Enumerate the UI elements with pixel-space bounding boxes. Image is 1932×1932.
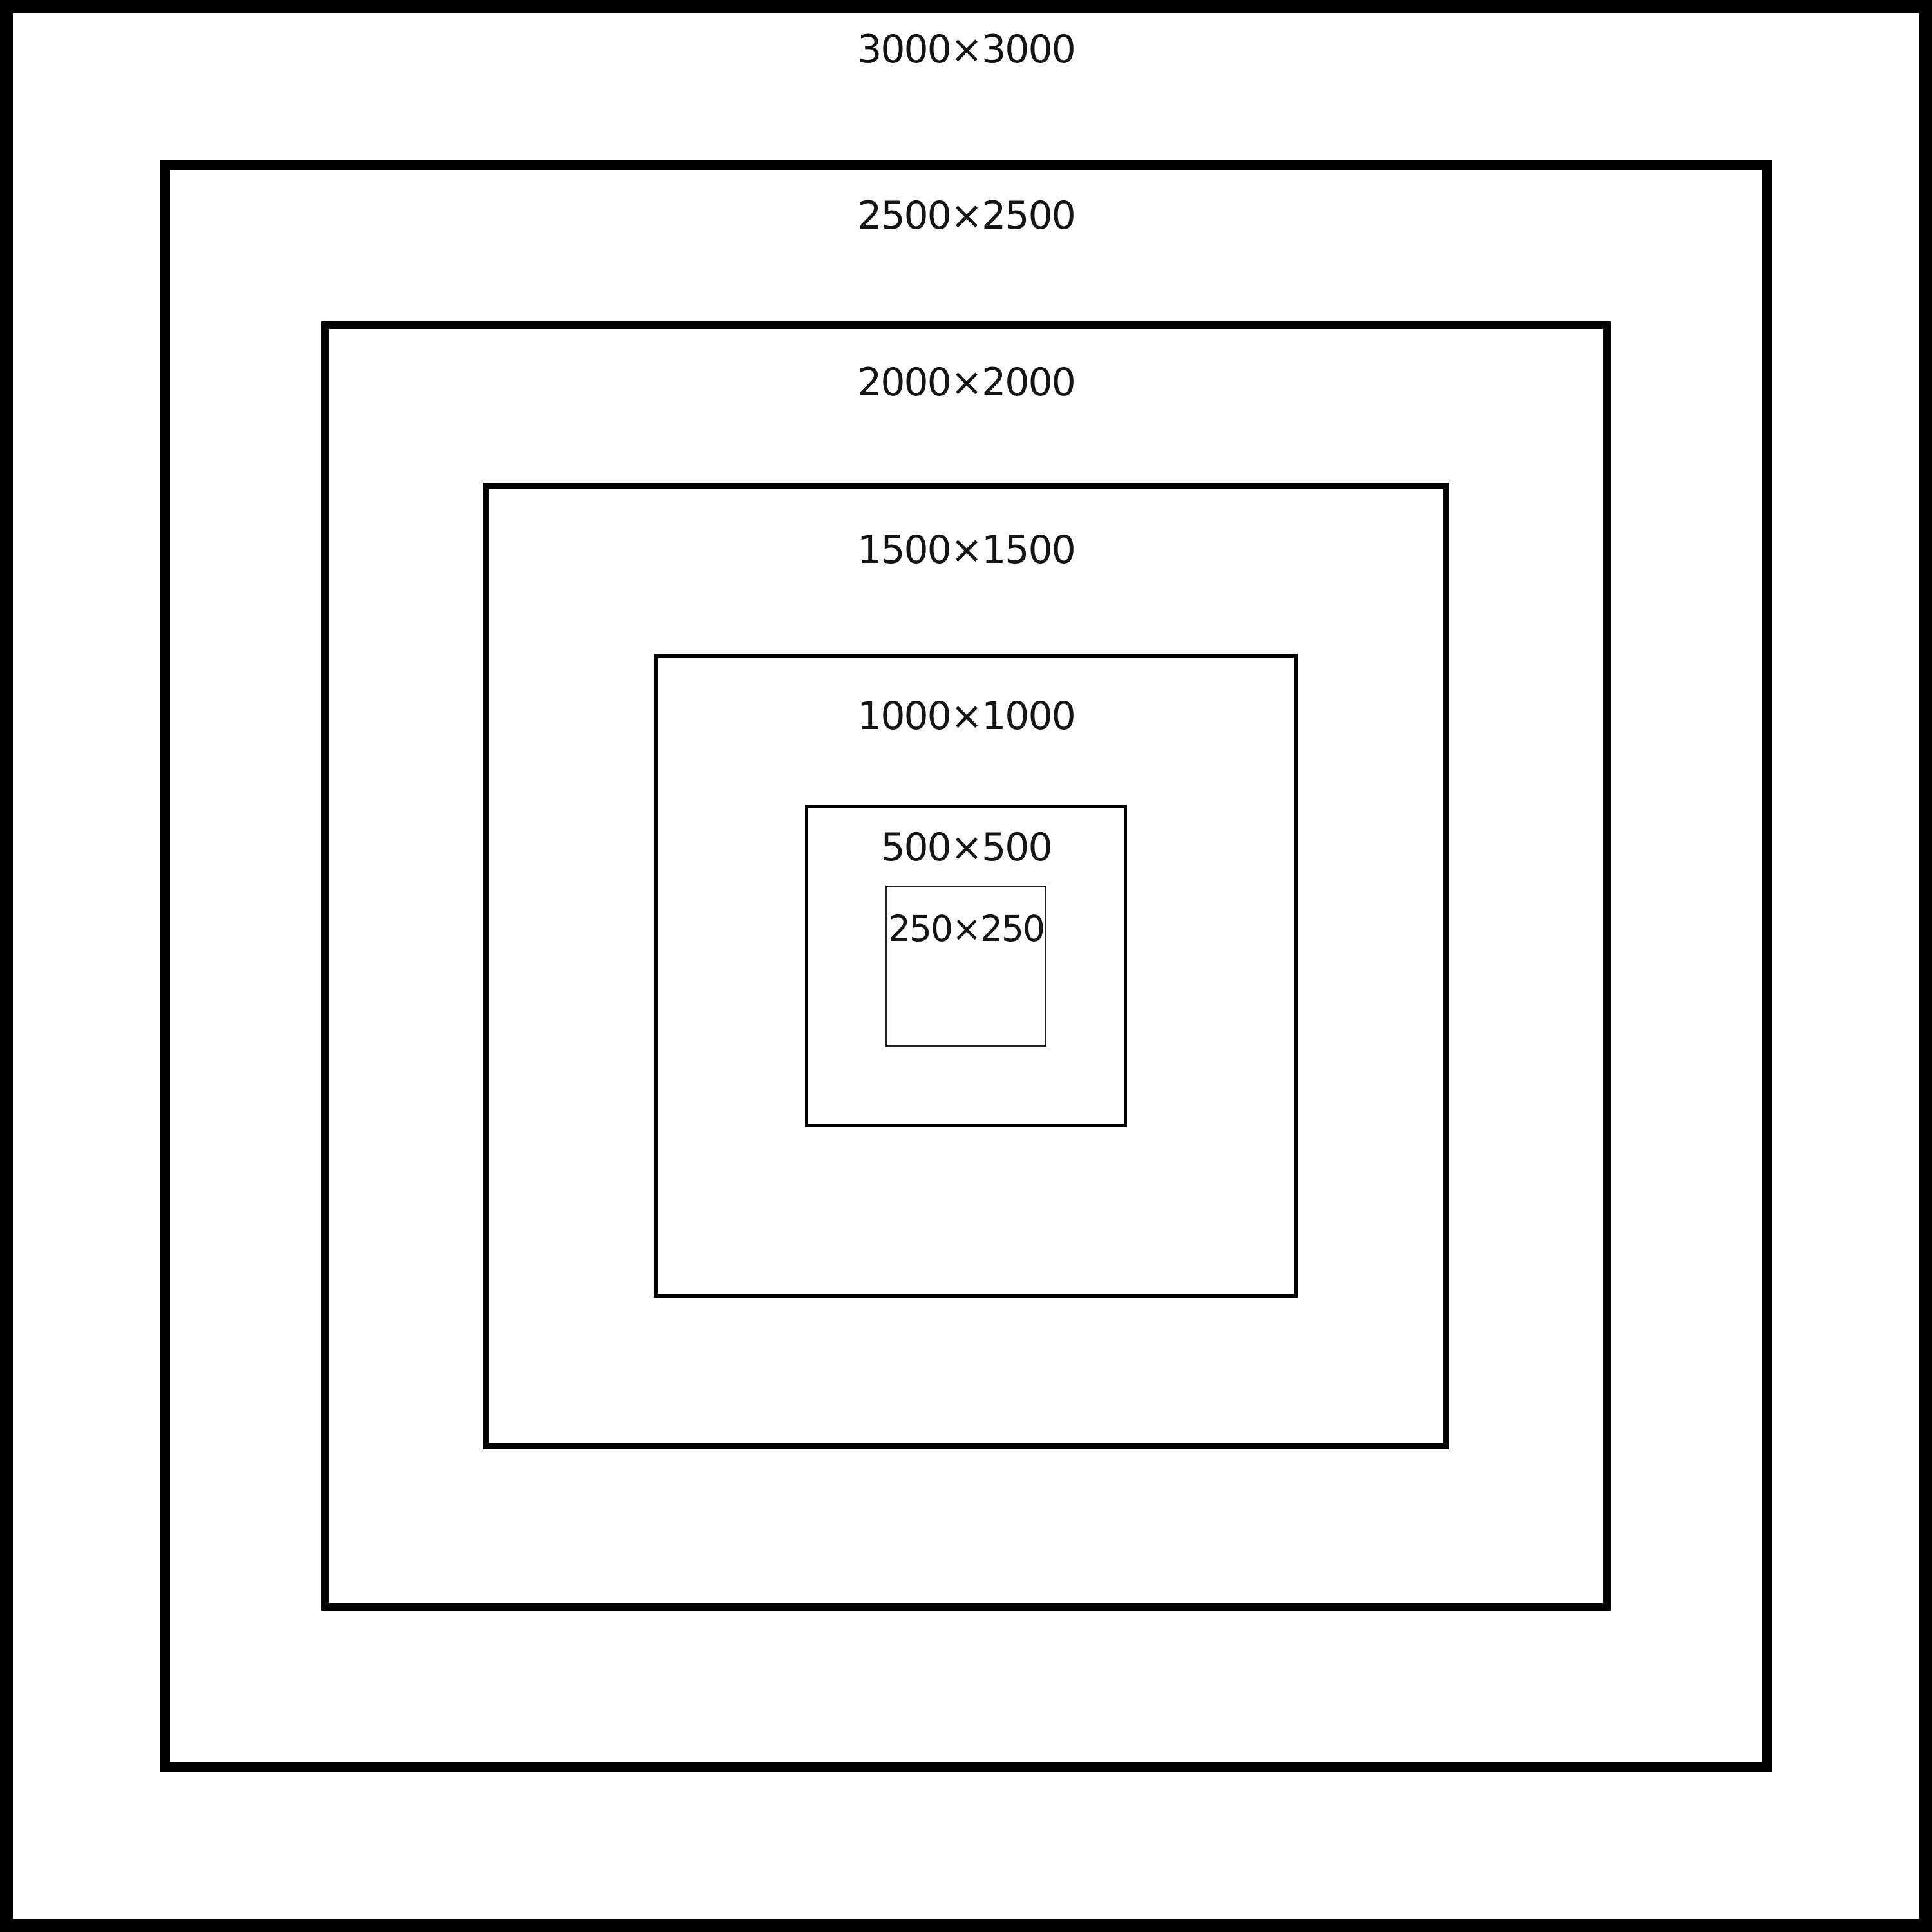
nested-squares-diagram: 3000×3000 2500×2500 2000×2000 1500×1500 … <box>0 0 1932 1932</box>
size-label-2500: 2500×2500 <box>0 196 1932 235</box>
size-label-1000: 1000×1000 <box>0 697 1932 735</box>
size-label-2000: 2000×2000 <box>0 363 1932 402</box>
size-label-250: 250×250 <box>0 911 1932 947</box>
size-label-1500: 1500×1500 <box>0 531 1932 569</box>
size-label-500: 500×500 <box>0 828 1932 867</box>
size-label-3000: 3000×3000 <box>0 30 1932 69</box>
